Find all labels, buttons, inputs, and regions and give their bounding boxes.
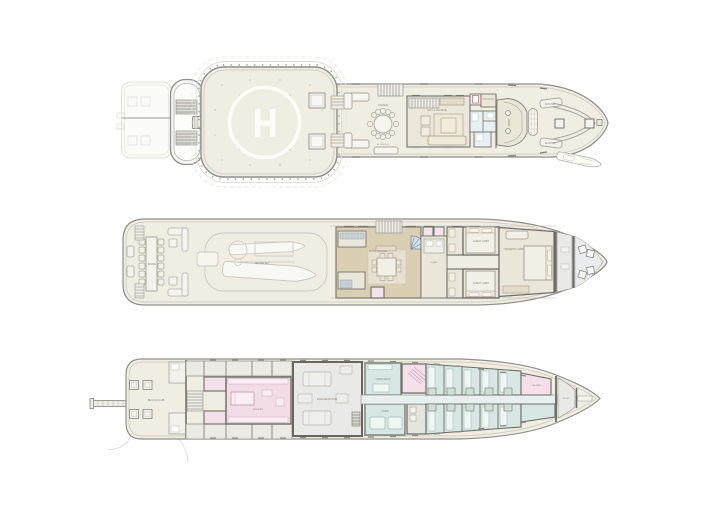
- svg-text:GALLEY: GALLEY: [253, 407, 263, 411]
- svg-text:AL FRESCO: AL FRESCO: [377, 143, 390, 146]
- svg-text:TENDER BAY: TENDER BAY: [254, 262, 270, 265]
- svg-text:CREW: CREW: [381, 410, 389, 413]
- svg-text:CAPTAIN: CAPTAIN: [531, 384, 541, 387]
- svg-text:SUN PAD: SUN PAD: [545, 142, 556, 145]
- svg-text:ENGINE ROOM: ENGINE ROOM: [317, 397, 338, 401]
- svg-text:OWNER'S CABIN: OWNER'S CABIN: [504, 247, 525, 251]
- svg-text:MAIN SALON: MAIN SALON: [369, 249, 388, 253]
- svg-text:SUN PAD: SUN PAD: [545, 103, 556, 106]
- svg-text:DINING: DINING: [148, 263, 157, 266]
- svg-text:LOBBY: LOBBY: [430, 262, 438, 264]
- svg-text:GUEST CABIN: GUEST CABIN: [473, 282, 489, 285]
- svg-text:STORE: STORE: [563, 398, 571, 400]
- svg-text:LOUNGE: LOUNGE: [378, 104, 389, 107]
- svg-text:GUEST CABIN: GUEST CABIN: [473, 240, 489, 243]
- svg-text:BEACH CLUB: BEACH CLUB: [148, 398, 165, 402]
- svg-text:SKY LOUNGE: SKY LOUNGE: [427, 108, 446, 112]
- svg-text:CREW MESS: CREW MESS: [376, 378, 391, 381]
